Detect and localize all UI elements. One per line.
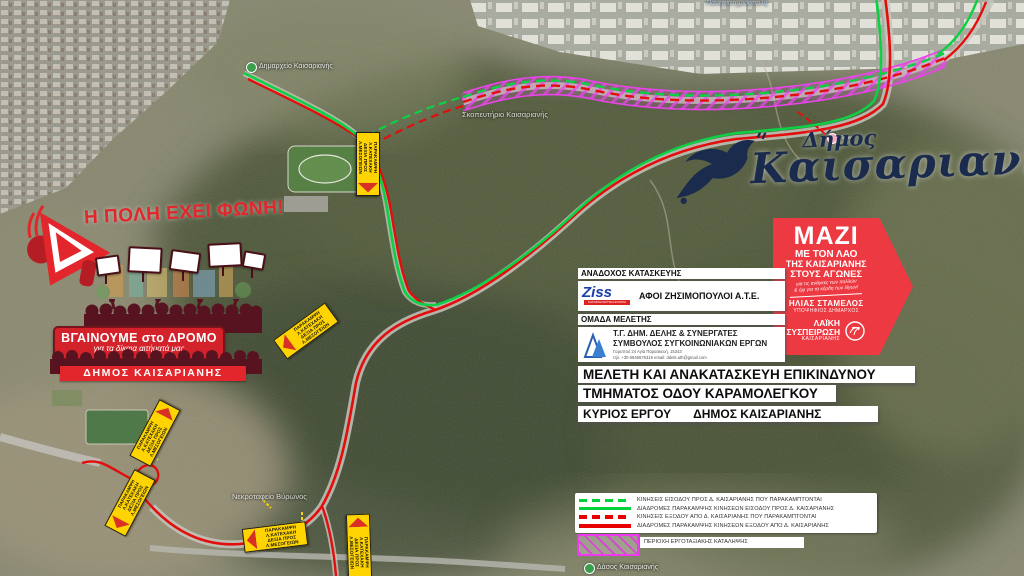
contractor-header: ΑΝΑΔΟΧΟΣ ΚΑΤΑΣΚΕΥΗΣ	[578, 268, 785, 279]
green-dashed-swatch	[579, 499, 631, 502]
legend-item: ΔΙΑΔΡΟΜΕΣ ΠΑΡΑΚΑΜΨΗΣ ΚΙΝΗΣΕΩΝ ΕΞΟΔΟΥ ΑΠΟ…	[579, 522, 873, 530]
contractor-name: ΑΦΟΙ ΖΗΣΙΜΟΠΟΥΛΟΙ Α.Τ.Ε.	[639, 291, 759, 301]
legend-label: ΚΙΝΗΣΕΙΣ ΕΙΣΟΔΟΥ ΠΡΟΣ Δ. ΚΑΙΣΑΡΙΑΝΗΣ ΠΟΥ…	[637, 497, 822, 503]
red-solid-swatch	[579, 524, 631, 528]
poi-forest-icon	[584, 563, 595, 574]
study-team-header: ΟΜΑΔΑ ΜΕΛΕΤΗΣ	[578, 314, 785, 325]
map-label-forest: Δάσος Καισαριανής	[597, 564, 658, 571]
legend-item: ΔΙΑΔΡΟΜΕΣ ΠΑΡΑΚΑΜΨΗΣ ΚΙΝΗΣΕΩΝ ΕΙΣΟΔΟΥ ΠΡ…	[579, 505, 873, 513]
legend-label: ΚΙΝΗΣΕΙΣ ΕΞΟΔΟΥ ΑΠΟ Δ. ΚΑΙΣΑΡΙΑΝΗΣ ΠΟΥ Π…	[637, 514, 817, 520]
blank-placard	[207, 242, 242, 268]
megaphone-icon	[19, 194, 128, 314]
municipality-logo: Δήμος Καισαριανής	[666, 102, 1019, 209]
poi-city-hall-icon	[246, 62, 257, 73]
project-owner-row: ΚΥΡΙΟΣ ΕΡΓΟΥ ΔΗΜΟΣ ΚΑΙΣΑΡΙΑΝΗΣ	[578, 406, 878, 422]
study-team-contact: τηλ. +30 6946576316 email: ddels.ath@gma…	[613, 355, 767, 360]
blank-placard	[169, 249, 202, 274]
map-poster: Πανεπιστημιούπολη Δημαρχείο Καισαριανής …	[0, 0, 1024, 576]
protest-footer: ΔΗΜΟΣ ΚΑΙΣΑΡΙΑΝΗΣ	[60, 366, 246, 381]
party-logo: ΛΑΪΚΗ ΣΥΣΠΕΙΡΩΣΗ ΚΑΙΣΑΡΙΑΝΗΣ	[786, 319, 866, 342]
legend-label: ΔΙΑΔΡΟΜΕΣ ΠΑΡΑΚΑΜΨΗΣ ΚΙΝΗΣΕΩΝ ΕΙΣΟΔΟΥ ΠΡ…	[637, 506, 834, 512]
candidate-role: ΥΠΟΨΗΦΙΟΣ ΔΗΜΑΡΧΟΣ	[793, 308, 859, 314]
study-team-name: Τ.Γ. ΔΗΜ. ΔΕΛΗΣ & ΣΥΝΕΡΓΑΤΕΣ	[613, 329, 767, 339]
delis-logo-icon	[582, 331, 608, 359]
ziss-logo: Ziss ΚΑΤΑΣΚΕΥΑΣΤΙΚΗ ΕΤΑΙΡΙΑ	[582, 284, 634, 308]
contractor-header-text: ΑΝΑΔΟΧΟΣ ΚΑΤΑΣΚΕΥΗΣ	[578, 268, 785, 279]
banner-line1: ΒΓΑΙΝΟΥΜΕ στο ΔΡΟΜΟ	[55, 332, 223, 346]
map-label-city-hall: Δημαρχείο Καισαριανής	[259, 63, 333, 70]
owner-value: ΔΗΜΟΣ ΚΑΙΣΑΡΙΑΝΗΣ	[693, 407, 821, 421]
ziss-logo-text: Ziss	[582, 284, 612, 301]
municipality-logo-large: Καισαριανής	[750, 133, 1024, 193]
divider	[790, 293, 862, 298]
detour-sign-text: ΠΑΡΑΚΑΜΨΗΛ.ΚΑΤΕΧΑΚΗ ΔΕΞΙΑ ΠΡΟΣΛ.ΜΕΣΟΓΕΙΩ…	[357, 133, 379, 182]
campaign-title: ΜΑΖΙ	[794, 225, 859, 249]
study-team-role: ΣΥΜΒΟΥΛΟΣ ΣΥΓΚΟΙΝΩΝΙΑΚΩΝ ΕΡΓΩΝ	[613, 339, 767, 349]
study-team-box: Τ.Γ. ΔΗΜ. ΔΕΛΗΣ & ΣΥΝΕΡΓΑΤΕΣ ΣΥΜΒΟΥΛΟΣ Σ…	[578, 327, 785, 362]
legend-label: ΔΙΑΔΡΟΜΕΣ ΠΑΡΑΚΑΜΨΗΣ ΚΙΝΗΣΕΩΝ ΕΞΟΔΟΥ ΑΠΟ…	[637, 523, 829, 529]
party-sub: ΚΑΙΣΑΡΙΑΝΗΣ	[786, 337, 840, 342]
ziss-logo-subtext: ΚΑΤΑΣΚΕΥΑΣΤΙΚΗ ΕΤΑΙΡΙΑ	[584, 300, 630, 305]
legend-item: ΚΙΝΗΣΕΙΣ ΕΙΣΟΔΟΥ ΠΡΟΣ Δ. ΚΑΙΣΑΡΙΑΝΗΣ ΠΟΥ…	[579, 496, 873, 504]
project-title-line2: ΤΜΗΜΑΤΟΣ ΟΔΟΥ ΚΑΡΑΜΟΛΕΓΚΟΥ	[578, 385, 836, 402]
detour-sign: ΠΑΡΑΚΑΜΨΗΛ.ΚΑΤΕΧΑΚΗ ΔΕΞΙΑ ΠΡΟΣΛ.ΜΕΣΟΓΕΙΩ…	[346, 514, 372, 576]
carnation-icon	[844, 320, 866, 342]
owner-label: ΚΥΡΙΟΣ ΕΡΓΟΥ	[583, 407, 671, 421]
detour-sign: ΠΑΡΑΚΑΜΨΗΛ.ΚΑΤΕΧΑΚΗ ΔΕΞΙΑ ΠΡΟΣΛ.ΜΕΣΟΓΕΙΩ…	[356, 132, 380, 196]
legend-item: ΚΙΝΗΣΕΙΣ ΕΞΟΔΟΥ ΑΠΟ Δ. ΚΑΙΣΑΡΙΑΝΗΣ ΠΟΥ Π…	[579, 513, 873, 521]
blank-placard	[127, 246, 162, 274]
contractor-box: Ziss ΚΑΤΑΣΚΕΥΑΣΤΙΚΗ ΕΤΑΙΡΙΑ ΑΦΟΙ ΖΗΣΙΜΟΠ…	[578, 281, 785, 311]
map-label-cemetery: Νεκροταφείο Βύρωνος	[232, 492, 307, 501]
project-title-line1: ΜΕΛΕΤΗ ΚΑΙ ΑΝΑΚΑΤΑΣΚΕΥΗ ΕΠΙΚΙΝΔΥΝΟΥ	[578, 366, 915, 383]
candidate-name: ΗΛΙΑΣ ΣΤΑΜΕΛΟΣ	[789, 299, 864, 308]
green-solid-swatch	[579, 507, 631, 510]
blank-placard	[242, 250, 267, 271]
legend-label: ΠΕΡΙΟΧΗ ΕΡΓΟΤΑΞΙΑΚΗΣ ΚΑΤΑΛΗΨΗΣ	[640, 537, 804, 548]
map-label-university: Πανεπιστημιούπολη	[706, 0, 768, 7]
legend: ΚΙΝΗΣΕΙΣ ΕΙΣΟΔΟΥ ΠΡΟΣ Δ. ΚΑΙΣΑΡΙΑΝΗΣ ΠΟΥ…	[575, 493, 877, 533]
study-team-header-text: ΟΜΑΔΑ ΜΕΛΕΤΗΣ	[578, 314, 785, 325]
detour-sign-text: ΠΑΡΑΚΑΜΨΗΛ.ΚΑΤΕΧΑΚΗ ΔΕΞΙΑ ΠΡΟΣΛ.ΜΕΣΟΓΕΙΩ…	[256, 522, 307, 550]
map-label-shooting-range: Σκοπευτήριο Καισαριανής	[462, 110, 548, 119]
detour-sign-text: ΠΑΡΑΚΑΜΨΗΛ.ΚΑΤΕΧΑΚΗ ΔΕΞΙΑ ΠΡΟΣΛ.ΜΕΣΟΓΕΙΩ…	[347, 528, 371, 576]
blank-placard	[95, 254, 121, 276]
arrow-chevron-icon	[358, 183, 378, 194]
magenta-hatched-swatch	[577, 534, 639, 556]
arrow-chevron-icon	[348, 516, 368, 528]
campaign-arrow-content: ΜΑΖΙ ΜΕ ΤΟΝ ΛΑΟ ΤΗΣ ΚΑΙΣΑΡΙΑΝΗΣ ΣΤΟΥΣ ΑΓ…	[773, 218, 879, 355]
red-dashed-swatch	[579, 515, 631, 519]
